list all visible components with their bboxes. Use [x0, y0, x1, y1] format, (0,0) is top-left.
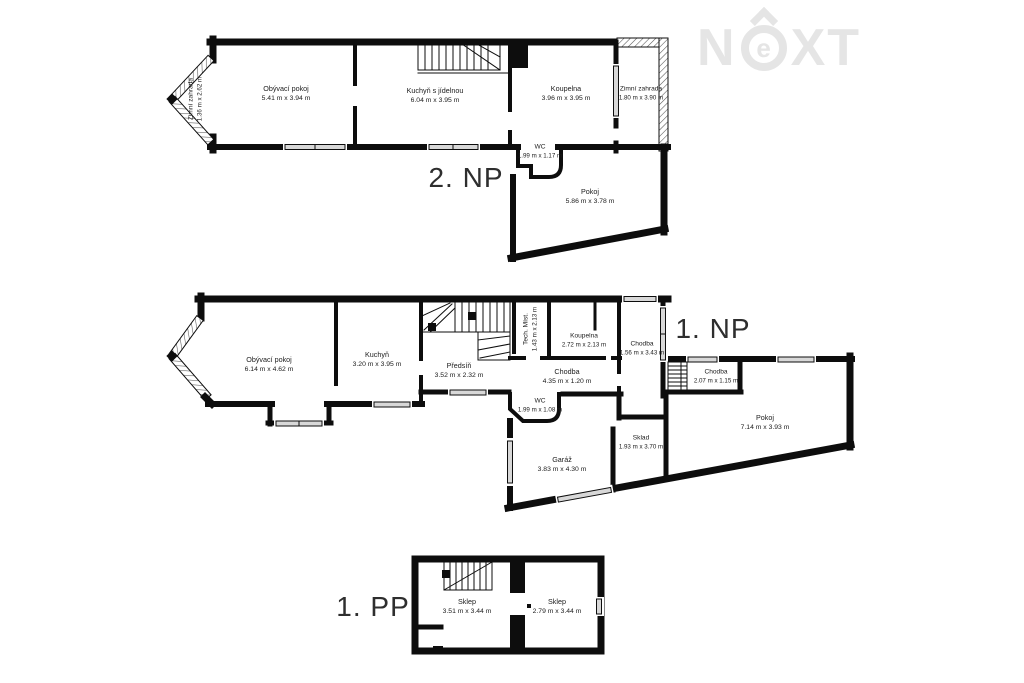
logo-letters-xt: XT	[791, 22, 861, 74]
room-label-wc-1np: WC 1.99 m x 1.08 m	[518, 397, 562, 416]
room-label-predsin-1np: Předsíň 3.52 m x 2.32 m	[435, 361, 484, 381]
floor-title-1pp: 1. PP	[336, 591, 409, 623]
center-wall-upper	[510, 556, 525, 593]
room-label-chodba-main-1np: Chodba 4.35 m x 1.20 m	[543, 367, 592, 387]
room-label-sklep-east-1pp: Sklep 2.79 m x 3.44 m	[533, 597, 582, 617]
floor-2np-plan	[166, 38, 668, 259]
room-label-obyvaci-pokoj-2np: Obývací pokoj 5.41 m x 3.94 m	[262, 84, 311, 104]
room-label-chodba-north-1np: Chodba 1.56 m x 3.43 m	[620, 340, 664, 359]
logo-letter-n: N	[697, 22, 737, 74]
room-label-tech-mist-1np: Tech. Míst. 1.43 m x 2.13 m	[522, 307, 541, 351]
room-label-obyvaci-pokoj-1np: Obývací pokoj 6.14 m x 4.62 m	[245, 355, 294, 375]
floor-title-1np: 1. NP	[675, 313, 750, 345]
room-label-zimni-zahrada-east-2np: Zimní zahrada 1.80 m x 3.90 m	[619, 85, 663, 104]
staircase-1pp	[442, 562, 492, 590]
center-wall-lower	[510, 615, 525, 654]
staircase-east-1np	[668, 362, 687, 390]
room-label-zimni-zahrada-west-2np: Zimní zahrada 1.36 m x 2.62 m	[187, 77, 206, 121]
room-label-chodba-east-1np: Chodba 2.07 m x 1.15 m	[694, 368, 738, 387]
room-label-pokoj-1np: Pokoj 7.14 m x 3.93 m	[741, 413, 790, 433]
room-label-sklad-1np: Sklad 1.93 m x 3.70 m	[619, 434, 663, 453]
chimney-block	[509, 40, 528, 68]
room-label-sklep-west-1pp: Sklep 3.51 m x 3.44 m	[443, 597, 492, 617]
window	[594, 597, 604, 616]
room-label-koupelna-2np: Koupelna 3.96 m x 3.95 m	[542, 84, 591, 104]
room-label-koupelna-1np: Koupelna 2.72 m x 2.13 m	[562, 332, 606, 351]
next-logo: N e XT	[697, 22, 861, 74]
room-label-garaz-1np: Garáž 3.83 m x 4.30 m	[538, 455, 587, 475]
room-label-kuchyn-1np: Kuchyň 3.20 m x 3.95 m	[353, 350, 402, 370]
staircase-2np	[418, 44, 509, 73]
room-label-kuchyn-s-jidelnou-2np: Kuchyň s jídelnou 6.04 m x 3.95 m	[407, 86, 464, 106]
staircase-1np	[422, 302, 510, 360]
floor-plan-graphics	[0, 0, 1024, 683]
room-label-wc-2np: WC 1.99 m x 1.17 m	[518, 143, 562, 162]
floor-title-2np: 2. NP	[428, 162, 503, 194]
logo-letter-e: e	[756, 35, 770, 61]
room-label-pokoj-2np: Pokoj 5.86 m x 3.78 m	[566, 187, 615, 207]
floorplan-page: N e XT	[0, 0, 1024, 683]
logo-ring-icon: e	[741, 25, 787, 71]
